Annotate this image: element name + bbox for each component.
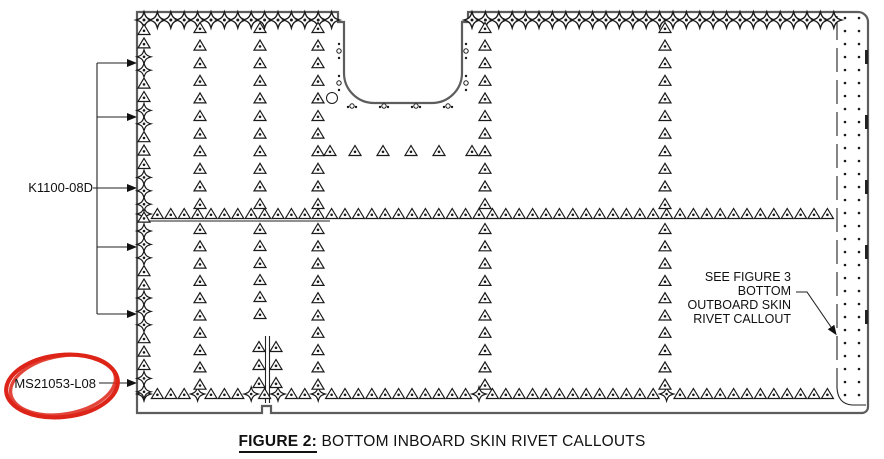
- engineering-drawing-page: K1100-08D MS21053-L08 SEE FIGURE 3 BOTTO…: [0, 0, 884, 459]
- rivet-diagram: K1100-08D MS21053-L08 SEE FIGURE 3 BOTTO…: [0, 0, 884, 459]
- figure-caption-text: BOTTOM INBOARD SKIN RIVET CALLOUTS: [317, 433, 646, 450]
- see-figure-note: SEE FIGURE 3 BOTTOM OUTBOARD SKIN RIVET …: [688, 270, 792, 326]
- see-figure-note-line: SEE FIGURE 3: [705, 270, 791, 284]
- rivet-symbols-layer: [93, 12, 868, 413]
- figure-caption: FIGURE 2: BOTTOM INBOARD SKIN RIVET CALL…: [62, 433, 822, 451]
- see-figure-note-line: RIVET CALLOUT: [693, 312, 791, 326]
- see-figure-note-line: BOTTOM: [738, 284, 791, 298]
- figure-caption-label: FIGURE 2:: [239, 433, 317, 453]
- see-figure-note-line: OUTBOARD SKIN: [688, 298, 792, 312]
- part-label-k1100: K1100-08D: [28, 180, 93, 195]
- part-label-ms21053: MS21053-L08: [14, 376, 96, 391]
